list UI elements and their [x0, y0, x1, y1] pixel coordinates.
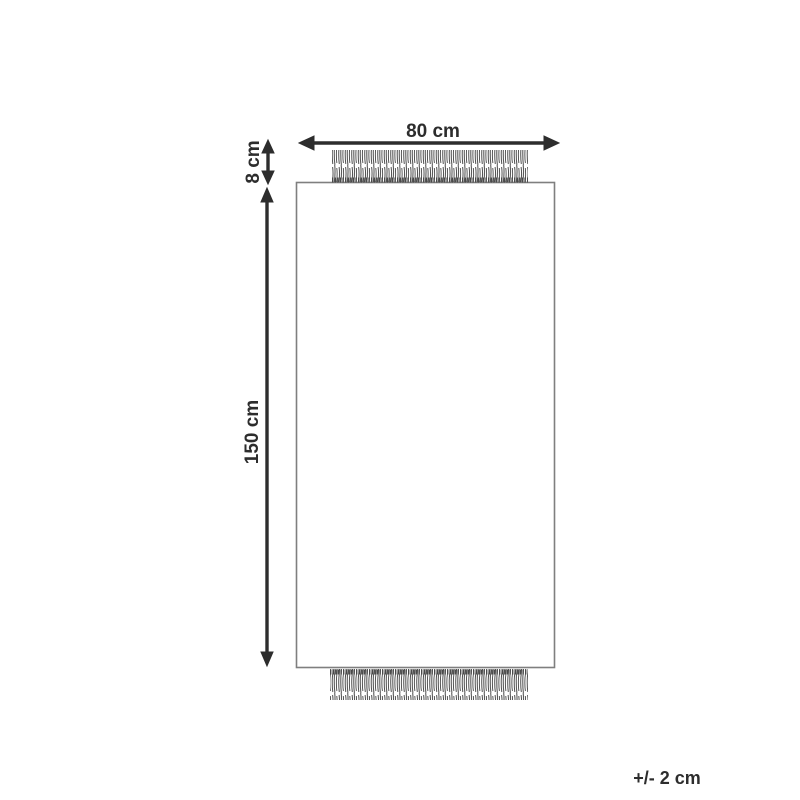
arrowhead-down: [261, 652, 273, 666]
rug-fringe-bottom: [330, 669, 528, 700]
arrowhead-up: [261, 188, 273, 202]
rug-fringe-top: [332, 150, 528, 182]
rug-dimension-diagram: 80 cm 8 cm 150 cm +/- 2 cm: [0, 0, 800, 800]
tolerance-label: +/- 2 cm: [633, 768, 701, 788]
diagram-svg: 80 cm 8 cm 150 cm +/- 2 cm: [0, 0, 800, 800]
width-dimension-label: 80 cm: [406, 121, 460, 142]
arrowhead-right: [544, 136, 559, 150]
fringe-dimension-label: 8 cm: [243, 140, 264, 183]
length-dimension-label: 150 cm: [242, 400, 263, 464]
arrowhead-left: [299, 136, 314, 150]
rug-outline: [297, 183, 555, 668]
